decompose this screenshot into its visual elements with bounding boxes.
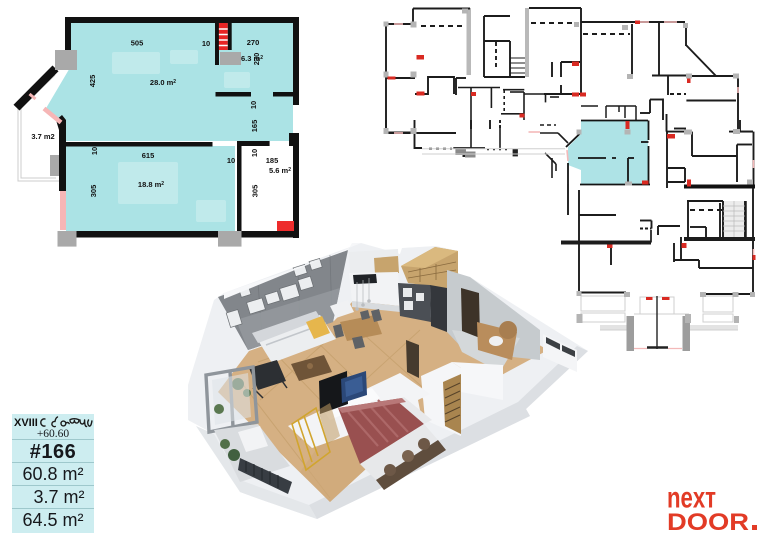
- svg-text:28.0 m2: 28.0 m2: [150, 78, 176, 87]
- svg-text:18.8 m2: 18.8 m2: [138, 180, 164, 189]
- svg-text:3.7 m2: 3.7 m2: [31, 132, 54, 141]
- svg-text:505: 505: [131, 39, 144, 48]
- svg-text:10: 10: [250, 149, 259, 157]
- svg-text:10: 10: [202, 39, 210, 48]
- svg-text:615: 615: [142, 151, 155, 160]
- svg-text:10: 10: [227, 156, 235, 165]
- svg-text:185: 185: [266, 156, 279, 165]
- svg-text:305: 305: [89, 185, 98, 198]
- svg-text:165: 165: [250, 120, 259, 133]
- svg-text:DOOR: DOOR: [667, 509, 749, 535]
- svg-text:10: 10: [249, 101, 258, 109]
- svg-text:425: 425: [88, 75, 97, 88]
- svg-text:305: 305: [251, 185, 260, 198]
- svg-text:5.6 m2: 5.6 m2: [269, 166, 291, 175]
- svg-text:10: 10: [90, 147, 99, 155]
- svg-text:270: 270: [247, 38, 260, 47]
- svg-text:230: 230: [252, 53, 261, 66]
